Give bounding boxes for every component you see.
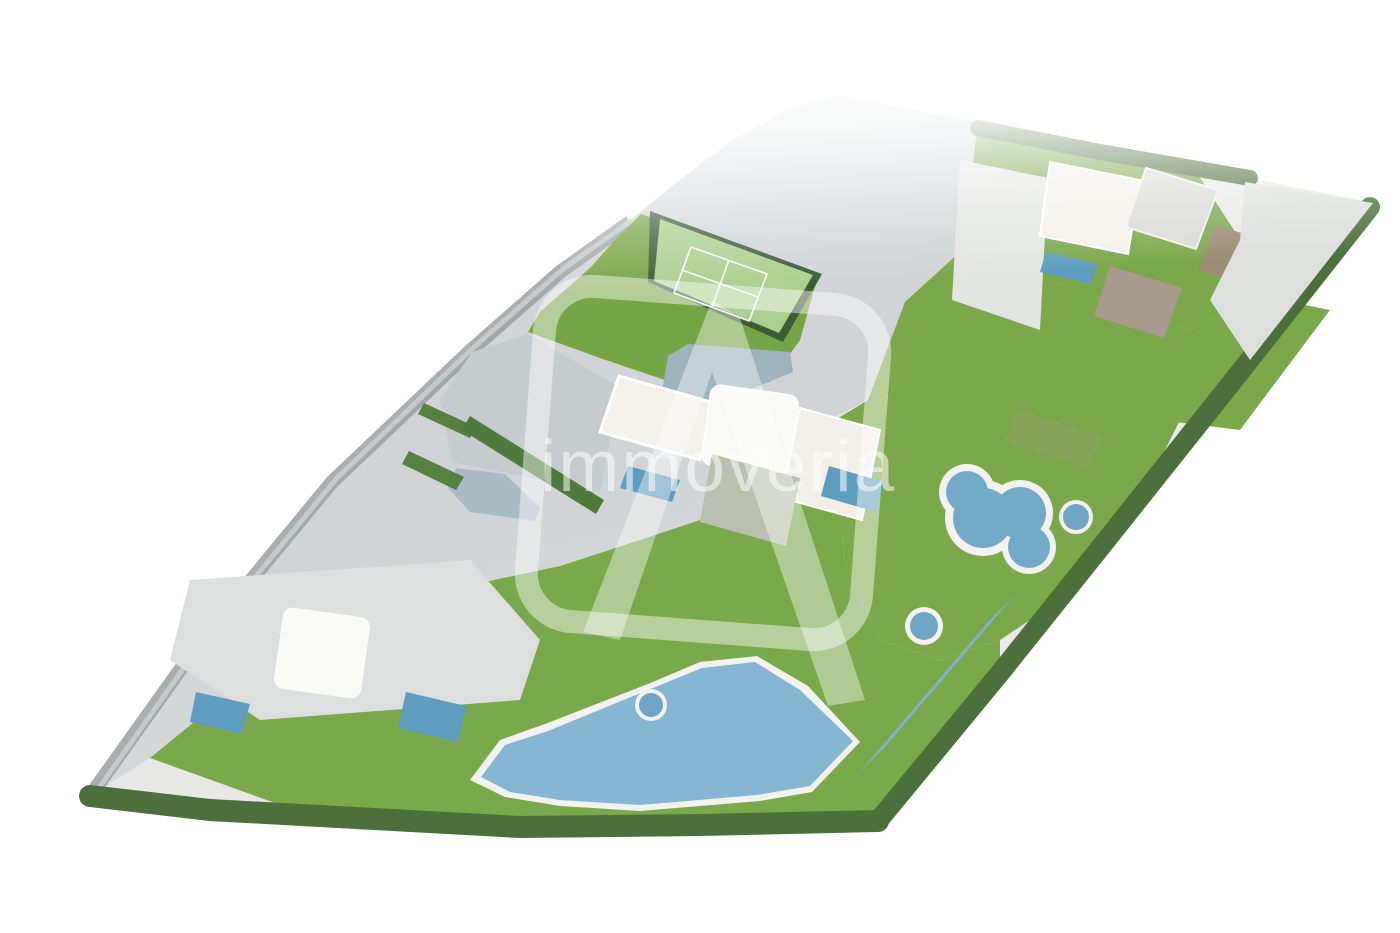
svg-text:immoveria: immoveria [540, 426, 896, 507]
